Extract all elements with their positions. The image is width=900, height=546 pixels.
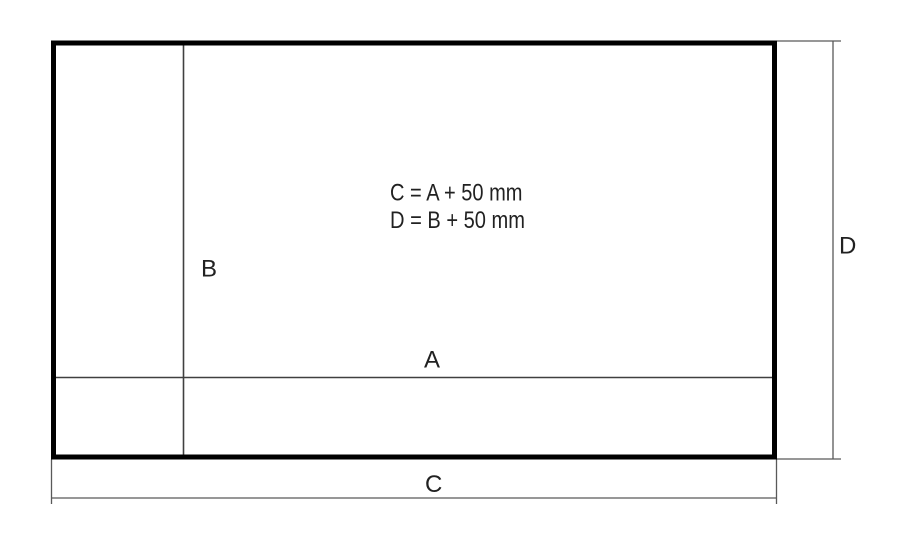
svg-text:C = A + 50 mm: C = A + 50 mm: [390, 180, 523, 207]
svg-text:D = B + 50 mm: D = B + 50 mm: [390, 207, 525, 234]
svg-text:A: A: [424, 347, 440, 374]
svg-text:B: B: [201, 256, 217, 283]
svg-text:D: D: [839, 233, 856, 260]
svg-text:C: C: [425, 471, 442, 498]
